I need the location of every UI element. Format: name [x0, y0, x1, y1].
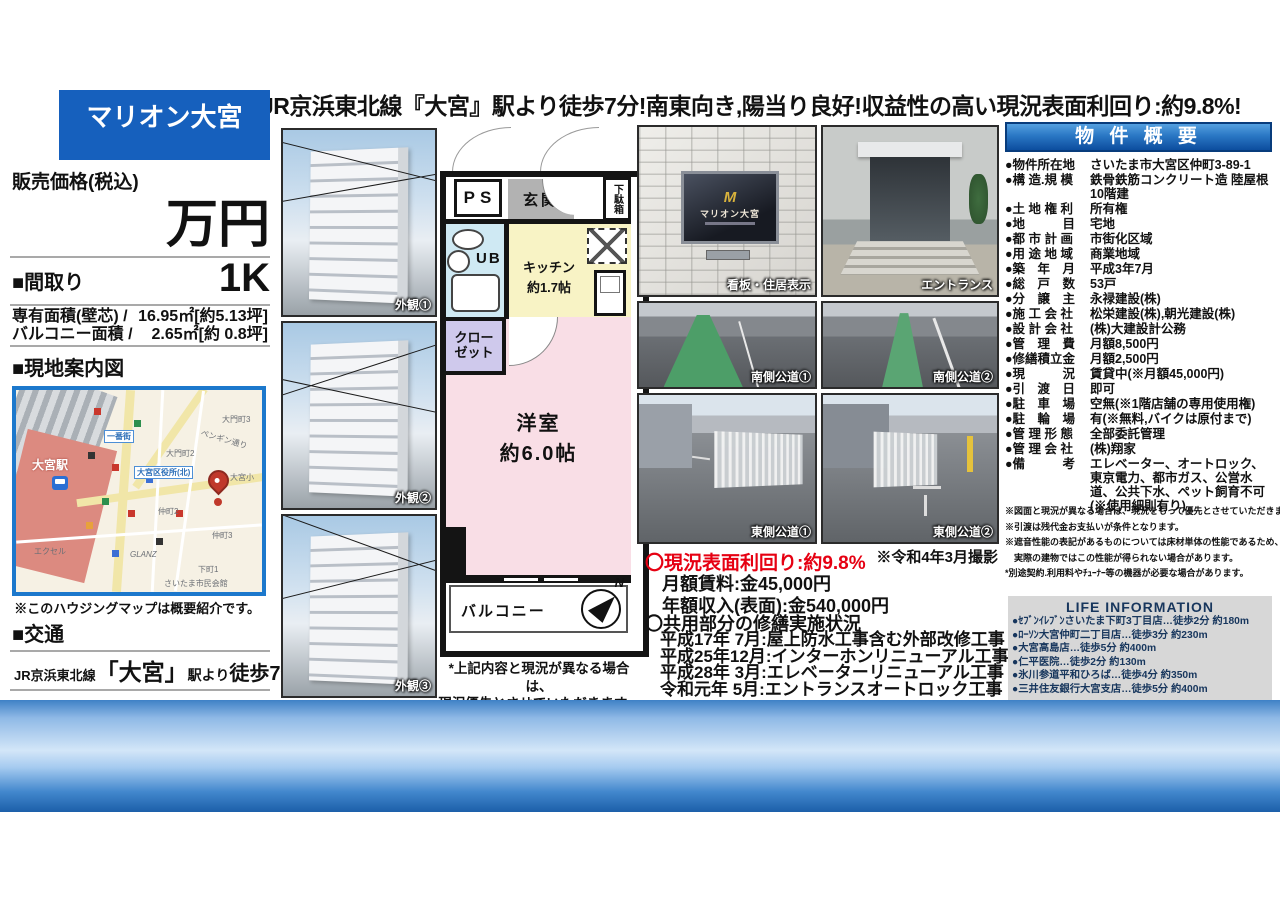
price-label: 販売価格(税込): [12, 167, 139, 194]
photo-caption: 看板・住居表示: [727, 276, 811, 293]
overview-value: (株)翔家: [1090, 442, 1273, 456]
overview-row: ●構 造.規 模 鉄骨鉄筋コンクリート造 陸屋根10階建: [1005, 173, 1273, 201]
overview-label: ●総 戸 数: [1005, 277, 1090, 291]
overview-value: 宅地: [1090, 217, 1273, 231]
kitchen-label-line: キッチン: [511, 258, 587, 278]
overview-label: ●管 理 形 態: [1005, 427, 1090, 441]
overview-label: ●分 譲 主: [1005, 292, 1090, 306]
unit-bath: UB: [446, 224, 504, 317]
overview-value: 月額2,500円: [1090, 352, 1273, 366]
location-map: 大宮駅 一番街 大宮区役所(北) 大門町2 大門町3 仲町2 仲町3 下町1 G…: [12, 386, 266, 596]
overview-row: ●管 理 費 月額8,500円: [1005, 337, 1273, 351]
road-marking: [924, 495, 927, 516]
life-information-title: LIFE INFORMATION: [1008, 599, 1272, 615]
photo-road-south-1: 南側公道①: [637, 301, 817, 389]
divider: [10, 650, 270, 652]
mail-slot: [706, 250, 750, 260]
photo-exterior-1: 外観①: [281, 128, 437, 317]
overview-value: 鉄骨鉄筋コンクリート造 陸屋根10階建: [1090, 173, 1273, 201]
overview-row: ●引 渡 日 即可: [1005, 382, 1273, 396]
note-line: *上記内容と現況が異なる場合は、: [438, 660, 640, 695]
overview-row: ●修繕積立金 月額2,500円: [1005, 352, 1273, 366]
door-arc: [540, 127, 599, 172]
map-note: ※このハウジングマップは概要紹介です。: [10, 598, 260, 617]
overview-table: ●物件所在地 さいたま市大宮区仲町3-89-1 ●構 造.規 模 鉄骨鉄筋コンク…: [1005, 158, 1273, 514]
window: [544, 578, 578, 581]
building-signboard: M マリオン大宮: [681, 171, 779, 244]
map-label: エクセル: [34, 546, 66, 557]
door-arc: [452, 127, 511, 172]
map-label: 一番街: [104, 430, 134, 443]
closet-label: ゼット: [454, 346, 493, 361]
map-station-label: 大宮駅: [32, 456, 68, 473]
photo-caption: 南側公道②: [933, 368, 993, 385]
map-label: GLANZ: [130, 550, 157, 559]
overview-value: 平成3年7月: [1090, 262, 1273, 276]
photo-caption: 東側公道①: [751, 523, 811, 540]
layout-heading: ■間取り: [12, 266, 84, 295]
area-label: 専有面積(壁芯) /: [12, 308, 128, 326]
room-label: 洋室: [446, 409, 631, 439]
overview-row: ●施 工 会 社 松栄建設(株),朝光建設(株): [1005, 307, 1273, 321]
kitchen-label: キッチン 約1.7帖: [511, 258, 587, 298]
toilet-shape: [452, 229, 484, 250]
balcony-label: バルコニー: [461, 600, 546, 621]
divider: [10, 689, 270, 691]
overview-notes: ※図面と現況が異なる場合は、現況をもって優先とさせていただきます。※引渡は残代金…: [1005, 504, 1275, 582]
photo-road-east-1: 東側公道①: [637, 393, 817, 544]
map-pin-icon: [204, 466, 234, 496]
overview-value: 商業地域: [1090, 247, 1273, 261]
window: [504, 578, 538, 581]
sink-shape: [447, 250, 470, 273]
transport-text: JR京浜東北線「大宮」駅より徒歩7分: [14, 653, 300, 687]
map-label: ペンギン通り: [199, 428, 248, 452]
map-label: 大門町2: [166, 448, 194, 459]
overview-label: ●施 工 会 社: [1005, 307, 1090, 321]
map-label: 仲町2: [158, 506, 178, 517]
map-label: 下町1: [198, 564, 218, 575]
life-information-item: ●ｾﾌﾞﾝｲﾚﾌﾞﾝさいたま下町3丁目店…徒歩2分 約180m: [1008, 615, 1272, 629]
wall-block: [446, 527, 466, 575]
overview-row: ●駐 車 場 空無(※1階店舗の専用使用権): [1005, 397, 1273, 411]
overview-row: ●用 途 地 域 商業地域: [1005, 247, 1273, 261]
overview-value: 53戸: [1090, 277, 1273, 291]
overview-label: ●地 目: [1005, 217, 1090, 231]
life-information-list: ●ｾﾌﾞﾝｲﾚﾌﾞﾝさいたま下町3丁目店…徒歩2分 約180m●ﾛｰｿﾝ大宮仲町…: [1008, 615, 1272, 696]
floor-plan: 洋室 約6.0帖 クロー ゼット PS 玄関 下駄箱 UB キッチン: [440, 125, 637, 700]
photo-entrance: エントランス: [821, 125, 999, 297]
compass-needle: [588, 596, 616, 624]
headline-text: JR京浜東北線『大宮』駅より徒歩7分!南東向き,陽当り良好!収益性の高い現況表面…: [261, 87, 1241, 121]
layout-value: 1K: [160, 258, 270, 298]
photo-exterior-2: 外観②: [281, 321, 437, 510]
overview-row: ●土 地 権 利 所有権: [1005, 202, 1273, 216]
building-silhouette: [639, 404, 692, 469]
overview-label: ●駐 輪 場: [1005, 412, 1090, 426]
compass-north-label: N: [615, 575, 624, 590]
area-value: 16.95㎡[約5.13坪]: [138, 308, 268, 326]
overview-label: ●修繕積立金: [1005, 352, 1090, 366]
map-heading: ■現地案内図: [12, 352, 124, 381]
overview-value: 永禄建設(株): [1090, 292, 1273, 306]
photo-caption: 外観③: [395, 677, 431, 694]
map-label: 大宮区役所(北): [134, 466, 193, 479]
photo-road-east-2: 東側公道②: [821, 393, 999, 544]
overview-note-line: 実際の建物ではこの性能が得られない場合があります。: [1005, 551, 1275, 567]
green-lane: [882, 313, 934, 387]
entrance-opening: [870, 157, 950, 241]
repair-history-item: 令和元年 5月:エントランスオートロック工事: [660, 682, 1009, 699]
footer-band: K Style 一級建築士事務所 株式会社ケースタイル 〒101-0032 東京…: [0, 700, 1280, 812]
entrance-roof: [858, 142, 962, 157]
transport-heading: ■交通: [12, 618, 64, 647]
overview-row: ●築 年 月 平成3年7月: [1005, 262, 1273, 276]
photo-caption: 外観②: [395, 489, 431, 506]
property-flyer: JR京浜東北線『大宮』駅より徒歩7分!南東向き,陽当り良好!収益性の高い現況表面…: [0, 0, 1280, 905]
life-information-item: ●ﾛｰｿﾝ大宮仲町二丁目店…徒歩3分 約230m: [1008, 629, 1272, 643]
compass-icon: N: [581, 589, 621, 629]
overview-label: ●管 理 費: [1005, 337, 1090, 351]
life-information-box: LIFE INFORMATION ●ｾﾌﾞﾝｲﾚﾌﾞﾝさいたま下町3丁目店…徒歩…: [1008, 596, 1272, 700]
overview-note-line: ※引渡は残代金お支払いが条件となります。: [1005, 520, 1275, 536]
area-value: 2.65㎡[約 0.8坪]: [152, 326, 269, 344]
overview-note-line: ※遮音性能の表記があるものについては床材単体の性能であるため、: [1005, 535, 1275, 551]
sign-logo: M: [724, 190, 737, 205]
photo-caption: 東側公道②: [933, 523, 993, 540]
overview-note-line: ※図面と現況が異なる場合は、現況をもって優先とさせていただきます。: [1005, 504, 1275, 520]
bathtub-shape: [451, 274, 500, 312]
overview-value: 松栄建設(株),朝光建設(株): [1090, 307, 1273, 321]
divider: [10, 345, 270, 347]
room-size-label: 約6.0帖: [446, 439, 631, 469]
ub-label: UB: [476, 250, 502, 267]
area-table: 専有面積(壁芯) / 16.95㎡[約5.13坪] バルコニー面積 / 2.65…: [12, 308, 268, 344]
photo-sign: M マリオン大宮 看板・住居表示: [637, 125, 817, 297]
overview-row: ●物件所在地 さいたま市大宮区仲町3-89-1: [1005, 158, 1273, 172]
overview-label: ●引 渡 日: [1005, 382, 1090, 396]
overview-label: ●駐 車 場: [1005, 397, 1090, 411]
overview-value: 空無(※1階店舗の専用使用権): [1090, 397, 1273, 411]
area-label: バルコニー面積 /: [12, 326, 133, 344]
ps-label: PS: [464, 188, 497, 208]
balcony: バルコニー N: [449, 585, 628, 633]
pipe-space: PS: [454, 179, 502, 217]
overview-row: ●現 況 賃貸中(※月額45,000円): [1005, 367, 1273, 381]
area-row: 専有面積(壁芯) / 16.95㎡[約5.13坪]: [12, 308, 268, 326]
kitchen-counter: [594, 270, 626, 316]
overview-label: ●都 市 計 画: [1005, 232, 1090, 246]
map-label: 仲町3: [212, 530, 232, 541]
overview-value: 有(※無料,バイクは原付まで): [1090, 412, 1273, 426]
repair-history-list: 平成17年 7月:屋上防水工事含む外部改修工事平成25年12月:インターホンリニ…: [660, 632, 1009, 698]
yellow-sign-pole: [967, 436, 973, 472]
overview-row: ●地 目 宅地: [1005, 217, 1273, 231]
overview-row: ●管 理 形 態 全部委託管理: [1005, 427, 1273, 441]
overview-label: ●用 途 地 域: [1005, 247, 1090, 261]
photo-exterior-3: 外観③: [281, 514, 437, 698]
overview-row: ●分 譲 主 永禄建設(株): [1005, 292, 1273, 306]
property-name-banner: マリオン大宮: [59, 90, 270, 160]
transport-mid: 駅より: [188, 667, 230, 683]
closet: クロー ゼット: [446, 317, 506, 375]
overview-label: ●設 計 会 社: [1005, 322, 1090, 336]
overview-label: ●構 造.規 模: [1005, 173, 1090, 201]
white-fence: [873, 432, 936, 488]
price-unit: 万円: [120, 199, 270, 251]
sign-name: マリオン大宮: [700, 207, 760, 220]
wall: [446, 575, 631, 583]
overview-row: ●管 理 会 社 (株)翔家: [1005, 442, 1273, 456]
map-station-area: [12, 429, 117, 583]
overview-value: 全部委託管理: [1090, 427, 1273, 441]
map-pin-dot: [214, 498, 222, 506]
white-fence: [714, 431, 802, 488]
life-information-item: ●仁平医院…徒歩2分 約130m: [1008, 656, 1272, 670]
overview-label: ●管 理 会 社: [1005, 442, 1090, 456]
map-label: 大門町3: [222, 414, 250, 425]
photo-road-south-2: 南側公道②: [821, 301, 999, 389]
overview-value: 市街化区域: [1090, 232, 1273, 246]
plant-shape: [969, 174, 988, 224]
life-information-item: ●三井住友銀行大宮支店…徒歩5分 約400m: [1008, 683, 1272, 697]
closet-label: クロー: [454, 331, 493, 346]
overview-label: ●現 況: [1005, 367, 1090, 381]
overview-row: ●駐 輪 場 有(※無料,バイクは原付まで): [1005, 412, 1273, 426]
shoe-box: 下駄箱: [603, 177, 631, 221]
sign-bar: [705, 222, 755, 225]
refrigerator-space: [587, 228, 627, 264]
overview-value: 即可: [1090, 382, 1273, 396]
building-shape: [309, 340, 409, 496]
map-poi-markers: [16, 390, 23, 397]
overview-heading: 物 件 概 要: [1005, 122, 1272, 152]
green-lane: [664, 315, 743, 387]
sink-inset: [600, 276, 620, 293]
overview-value: (株)大建設計公務: [1090, 322, 1273, 336]
road-marking: [913, 486, 941, 489]
shoe-box-label: 下駄箱: [610, 184, 625, 214]
overview-note-line: *別途契約.利用料やﾁｭｰﾅｰ等の機器が必要な場合があります。: [1005, 566, 1275, 582]
transport-station: 「大宮」: [96, 659, 188, 685]
map-label: 大宮小: [230, 472, 254, 483]
transport-line: JR京浜東北線: [14, 668, 96, 683]
overview-value: 賃貸中(※月額45,000円): [1090, 367, 1273, 381]
train-icon: [52, 476, 68, 490]
overview-row: ●設 計 会 社 (株)大建設計公務: [1005, 322, 1273, 336]
life-information-item: ●大宮高島店…徒歩5分 約400m: [1008, 642, 1272, 656]
overview-value: 所有権: [1090, 202, 1273, 216]
map-label: さいたま市民会館: [164, 578, 228, 589]
photo-caption: 外観①: [395, 296, 431, 313]
photo-caption: 南側公道①: [751, 368, 811, 385]
kitchen-size-line: 約1.7帖: [511, 278, 587, 298]
overview-value: 月額8,500円: [1090, 337, 1273, 351]
life-information-item: ●氷川参道平和ひろば…徒歩4分 約350m: [1008, 669, 1272, 683]
entrance-steps: [840, 241, 979, 275]
kitchen: キッチン 約1.7帖: [509, 224, 631, 317]
overview-label: ●土 地 権 利: [1005, 202, 1090, 216]
overview-label: ●築 年 月: [1005, 262, 1090, 276]
floor-plan-outline: 洋室 約6.0帖 クロー ゼット PS 玄関 下駄箱 UB キッチン: [440, 171, 649, 657]
photo-caption: エントランス: [921, 276, 993, 293]
overview-value: さいたま市大宮区仲町3-89-1: [1090, 158, 1273, 172]
overview-row: ●都 市 計 画 市街化区域: [1005, 232, 1273, 246]
overview-label: ●物件所在地: [1005, 158, 1090, 172]
divider: [10, 304, 270, 306]
overview-row: ●総 戸 数 53戸: [1005, 277, 1273, 291]
road-marking: [692, 456, 710, 460]
area-row: バルコニー面積 / 2.65㎡[約 0.8坪]: [12, 326, 268, 344]
